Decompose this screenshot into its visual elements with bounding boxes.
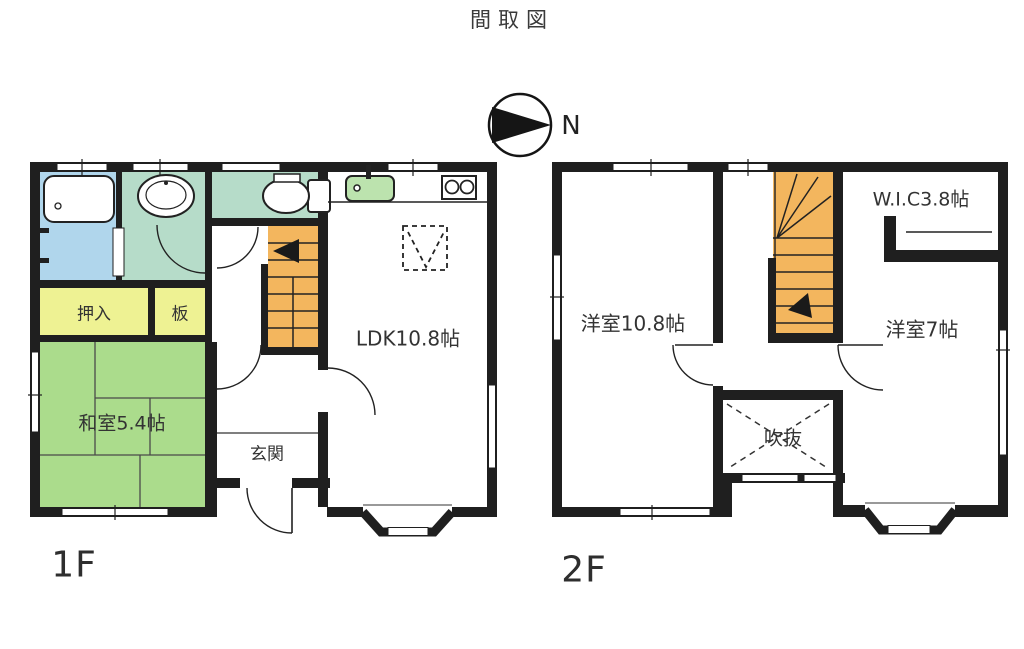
floorplan-page: 間取図 N — [0, 0, 1024, 649]
stairs-2f — [773, 172, 833, 343]
entrance-door-arc — [247, 488, 292, 533]
floor1-label: 1F — [51, 545, 97, 586]
corridor-door-arc — [217, 345, 261, 389]
hall-door-arc — [217, 227, 258, 268]
room-label-western-small: 洋室7帖 — [886, 314, 959, 343]
room-label-fukinuke: 吹抜 — [764, 424, 802, 451]
room-label-ita: 板 — [172, 300, 189, 325]
ldk-door-arc — [328, 368, 375, 415]
room-label-ldk: LDK10.8帖 — [356, 323, 460, 352]
western-large-door-arc — [673, 345, 713, 385]
room-label-washitsu: 和室5.4帖 — [78, 409, 165, 436]
room-label-wic: W.I.C3.8帖 — [873, 185, 970, 212]
refrigerator-icon — [403, 226, 447, 270]
bath-sliding-door — [113, 228, 124, 276]
bathtub-icon — [44, 176, 114, 222]
western-small-door-arc — [838, 345, 883, 390]
room-label-genkan: 玄関 — [250, 440, 284, 465]
entrance-opening — [240, 478, 292, 488]
floor2-label: 2F — [561, 550, 607, 591]
floorplan-drawing — [0, 0, 1024, 649]
floor2-door-arcs — [673, 345, 883, 390]
stove-icon — [442, 176, 476, 199]
room-label-oshiire: 押入 — [77, 300, 111, 325]
bay-window-1f — [363, 505, 452, 536]
room-label-western-large: 洋室10.8帖 — [581, 308, 686, 337]
washbasin-icon — [138, 175, 194, 217]
bay-window-2f — [865, 503, 955, 534]
compass-icon — [489, 94, 551, 156]
